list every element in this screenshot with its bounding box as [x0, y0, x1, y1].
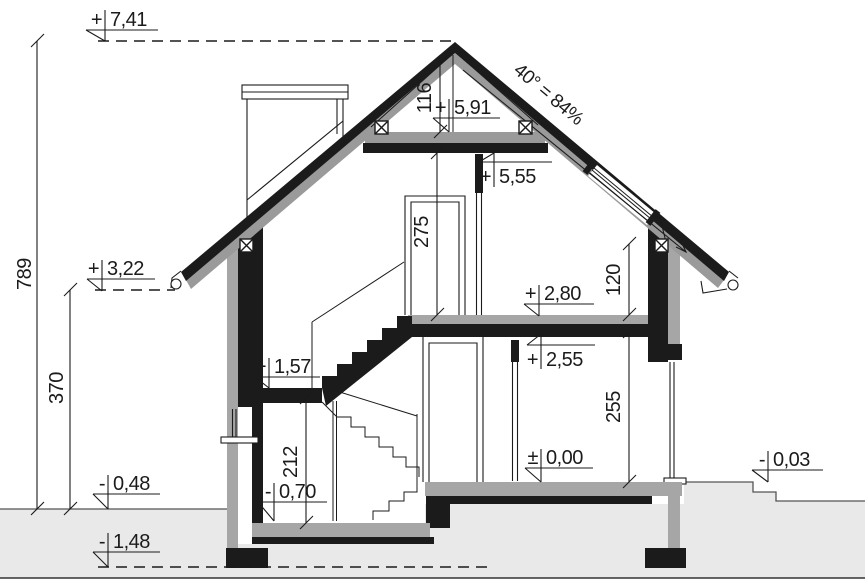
right-window-lintel	[648, 344, 682, 360]
gutter-left	[171, 271, 181, 289]
roof-slope-arrow	[463, 70, 686, 252]
stair-railing	[312, 262, 404, 322]
level-eaves-sign: +	[88, 258, 99, 280]
level-foundation-value: 1,48	[113, 531, 150, 553]
dim-lower-room: 212	[280, 446, 302, 478]
left-window-sill	[221, 437, 258, 443]
level-ground-floor-value: 0,00	[546, 447, 583, 469]
dim-total-height: 789	[14, 258, 36, 290]
level-collar-sign: +	[435, 97, 446, 119]
attic-door	[405, 196, 465, 315]
level-collar-value: 5,91	[454, 97, 491, 119]
level-ridge-sign: +	[91, 9, 102, 31]
stair-lower-flight-b	[373, 478, 417, 520]
level-attic-floor-value: 2,80	[544, 283, 581, 305]
cross-section-drawing: + 7,41 + 5,91 + 5,55 + 3,22 + 2,80 + 2,5…	[0, 0, 865, 586]
purlin-icon	[375, 121, 388, 134]
level-landing-value: 1,57	[274, 356, 311, 378]
level-attic-floor-sign: +	[525, 283, 536, 305]
right-footing	[645, 548, 686, 568]
stair-lower-flight-a	[337, 417, 419, 477]
level-foundation-sign: -	[99, 531, 105, 553]
section-linework: + 7,41 + 5,91 + 5,55 + 3,22 + 2,80 + 2,5…	[0, 0, 865, 586]
level-eaves-value: 3,22	[107, 258, 144, 280]
dim-attic-room: 275	[411, 216, 433, 248]
ground-door	[423, 336, 483, 482]
dim-ridge-zone: 116	[414, 82, 436, 113]
level-attic-ceiling-value: 5,55	[499, 166, 536, 188]
lower-floor-slab	[252, 523, 434, 544]
level-ground-ceiling-value: 2,55	[546, 349, 583, 371]
dim-eaves-to-ground: 370	[46, 372, 68, 404]
level-ground-ceiling-sign: +	[527, 349, 538, 371]
collar-ceiling	[363, 132, 548, 153]
level-terrain-right-sign: -	[759, 449, 765, 471]
level-terrain-left-value: 0,48	[113, 473, 150, 495]
stair-upper-flight	[322, 316, 412, 406]
purlin-icon	[240, 239, 253, 252]
level-lower-floor-value: 0,70	[279, 481, 316, 503]
ground-partition	[511, 340, 519, 481]
attic-floor-slab	[404, 315, 668, 337]
level-attic-ceiling-sign: +	[480, 166, 491, 188]
level-lower-floor-sign: -	[265, 481, 271, 503]
level-landing-sign: +	[255, 356, 266, 378]
level-terrain-right-value: 0,03	[773, 449, 810, 471]
level-ground-floor-sign: ±	[528, 447, 539, 469]
left-footing	[226, 548, 268, 568]
level-terrain-left-sign: -	[99, 473, 105, 495]
purlin-icon	[519, 121, 532, 134]
stair-railing-lower	[330, 389, 417, 416]
stairs	[252, 262, 419, 521]
purlin-icon	[655, 239, 668, 252]
level-ridge-value: 7,41	[110, 9, 147, 31]
dim-ground-room: 255	[603, 391, 625, 423]
stair-landing-slab	[252, 388, 322, 403]
dim-knee-wall: 120	[603, 264, 625, 296]
